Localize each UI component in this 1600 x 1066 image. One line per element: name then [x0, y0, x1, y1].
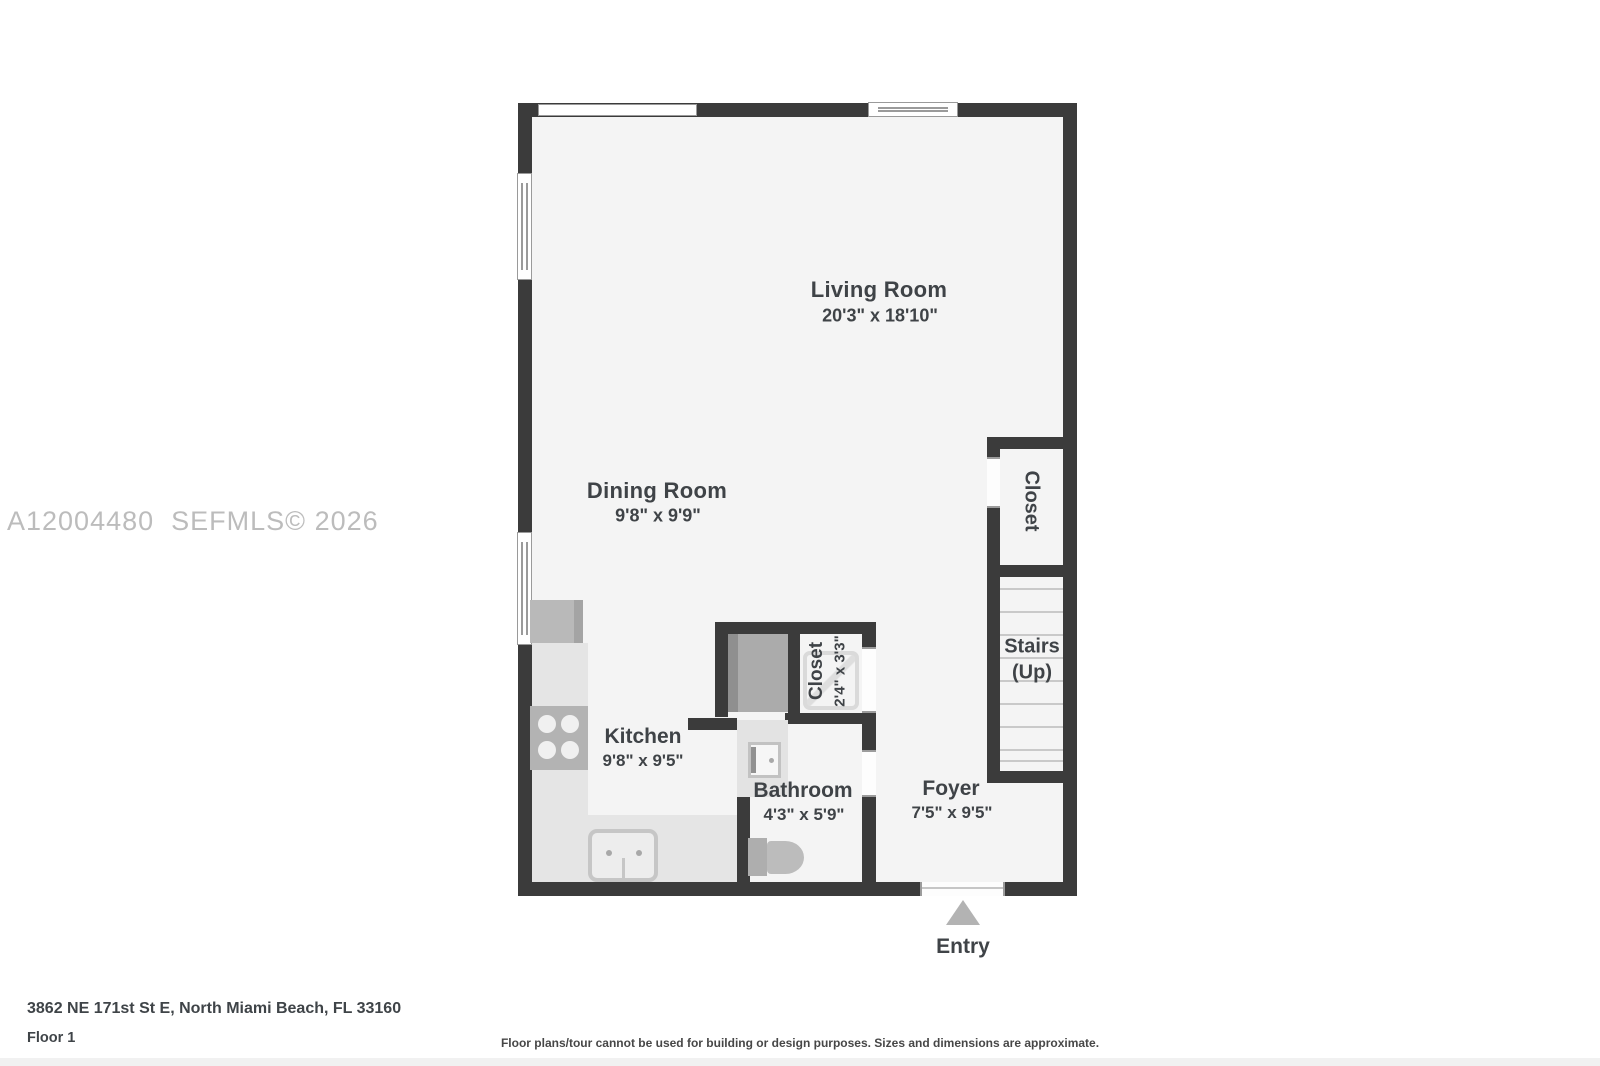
small-closet-door-opening [862, 647, 876, 713]
bathroom-sink-icon [748, 742, 781, 778]
bath-wall-right-mid [862, 713, 876, 750]
small-closet-wall-bottom [785, 713, 862, 724]
small-closet-dims: 2'4" x 3'3" [832, 635, 849, 706]
stairs-label: Stairs [1004, 636, 1060, 659]
bathroom-label: Bathroom [753, 779, 852, 803]
refrigerator-edge [574, 600, 583, 643]
window-icon [868, 102, 958, 117]
stairs-tread [1000, 760, 1063, 762]
kitchen-bath-stub-wall [688, 718, 737, 730]
dining-room-label: Dining Room [587, 478, 727, 504]
small-closet-label: Closet [806, 642, 828, 700]
refrigerator-icon [530, 600, 583, 643]
footer-divider-band [0, 1058, 1600, 1066]
mls-watermark: A12004480 SEFMLS© 2026 [7, 506, 379, 537]
window-pane [521, 183, 528, 270]
shower-door-line [728, 634, 738, 712]
sink-faucet-dot [636, 850, 642, 856]
living-room-dims: 20'3" x 18'10" [822, 306, 938, 327]
closet-wall-bottom [987, 565, 1063, 577]
entry-arrow-icon [946, 900, 980, 925]
stairs-wall-bottom [990, 771, 1077, 783]
entry-label: Entry [936, 935, 990, 959]
disclaimer-text: Floor plans/tour cannot be used for buil… [0, 1036, 1600, 1050]
stairs-wall-left [987, 577, 1000, 783]
stairs-up-label: (Up) [1012, 662, 1052, 685]
closet-wall-left-upper [987, 437, 1000, 457]
window-icon [517, 173, 532, 280]
closet-door-opening [987, 457, 1000, 508]
entry-door-opening [920, 882, 1005, 896]
living-room-label: Living Room [811, 277, 948, 303]
window-pane [878, 107, 948, 112]
shower-icon [728, 634, 790, 712]
bath-closet-divider-wall [788, 622, 800, 720]
foyer-label: Foyer [922, 777, 979, 801]
stove-burner [561, 741, 579, 759]
stove-burner [538, 741, 556, 759]
sink-faucet-bar [751, 747, 756, 773]
toilet-tank-icon [748, 838, 767, 876]
closet-entry-label: Closet [1020, 470, 1043, 531]
bath-wall-right-upper [862, 622, 876, 647]
bathroom-dims: 4'3" x 5'9" [764, 805, 845, 825]
property-address: 3862 NE 171st St E, North Miami Beach, F… [27, 1000, 401, 1018]
toilet-bowl-icon [767, 841, 804, 874]
foyer-dims: 7'5" x 9'5" [912, 803, 993, 823]
sink-drain-dot [769, 758, 774, 763]
entry-threshold-line [922, 887, 1003, 889]
stove-burner [561, 715, 579, 733]
bath-wall-right-lower [862, 797, 876, 883]
window-pane [521, 542, 528, 635]
sink-faucet-dot [606, 850, 612, 856]
stove-burner [538, 715, 556, 733]
closet-wall-left-lower [987, 508, 1000, 565]
kitchen-label: Kitchen [604, 725, 681, 749]
bathroom-door-opening [862, 750, 876, 797]
bath-block-wall-left [715, 622, 728, 717]
window-icon [538, 104, 697, 116]
kitchen-sink-icon [588, 829, 658, 882]
stove-icon [530, 706, 588, 770]
closet-wall-top [987, 437, 1077, 449]
kitchen-dims: 9'8" x 9'5" [603, 751, 684, 771]
dining-room-dims: 9'8" x 9'9" [615, 506, 701, 527]
sink-divider-line [622, 858, 625, 878]
